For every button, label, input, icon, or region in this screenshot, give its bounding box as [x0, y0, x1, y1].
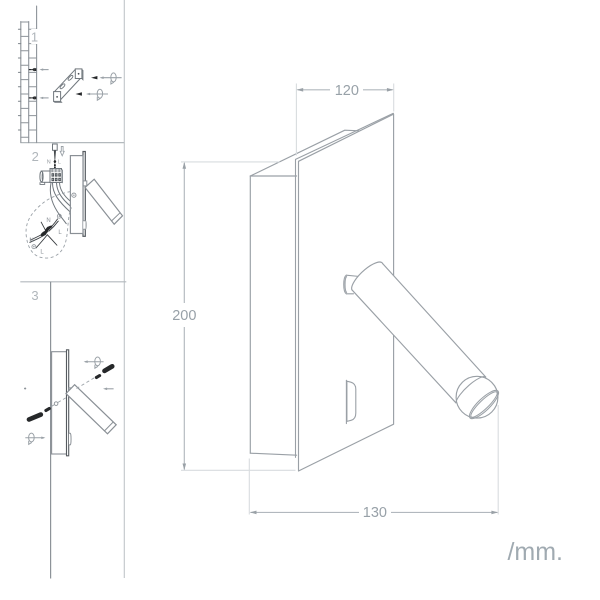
svg-text:N: N: [46, 218, 50, 224]
svg-text:N: N: [29, 238, 33, 244]
svg-text:120: 120: [335, 83, 359, 99]
svg-text:1: 1: [31, 30, 38, 45]
svg-text:3: 3: [31, 288, 38, 303]
svg-text:200: 200: [172, 308, 196, 324]
svg-text:N: N: [47, 159, 51, 165]
svg-text:/mm.: /mm.: [507, 538, 563, 566]
svg-text:L: L: [58, 159, 61, 165]
svg-text:130: 130: [363, 505, 387, 521]
svg-text:2: 2: [32, 149, 39, 164]
